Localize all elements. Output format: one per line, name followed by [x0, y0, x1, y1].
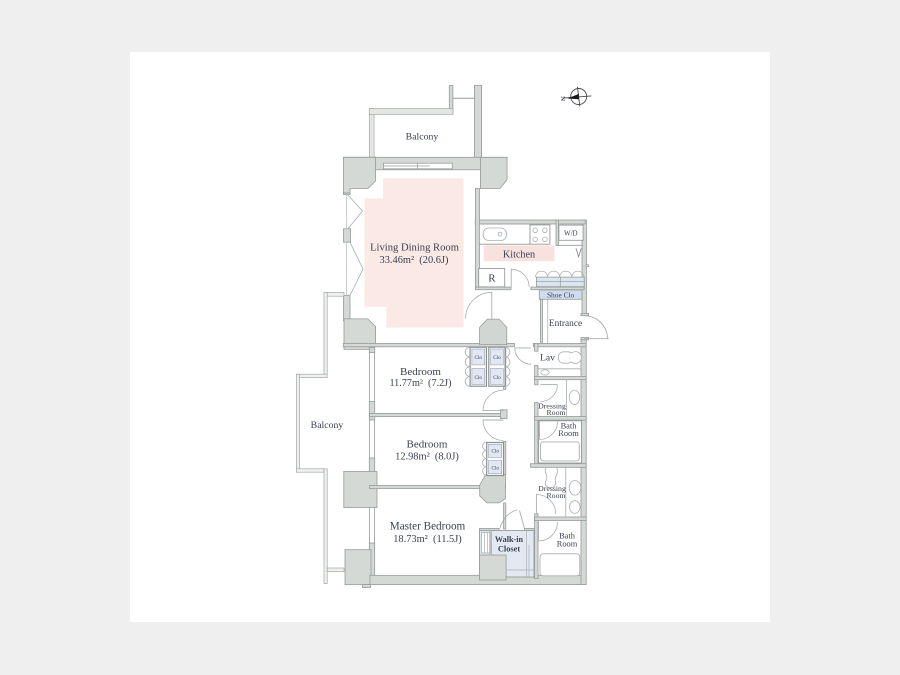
svg-text:N: N — [559, 96, 566, 101]
svg-text:33.46m² (20.6J): 33.46m² (20.6J) — [380, 255, 449, 266]
svg-text:Room: Room — [546, 491, 565, 500]
svg-text:Clo: Clo — [474, 375, 482, 381]
svg-text:Bedroom: Bedroom — [407, 439, 448, 451]
svg-text:Clo: Clo — [493, 375, 501, 381]
svg-text:Clo: Clo — [474, 355, 482, 361]
svg-text:Room: Room — [557, 539, 578, 548]
svg-text:Lav: Lav — [540, 352, 555, 363]
svg-text:Master Bedroom: Master Bedroom — [390, 521, 466, 533]
svg-text:Clo: Clo — [493, 355, 501, 361]
svg-text:Kitchen: Kitchen — [503, 249, 535, 260]
svg-text:Room: Room — [558, 429, 579, 438]
svg-text:12.98m² (8.0J): 12.98m² (8.0J) — [395, 452, 459, 463]
svg-text:W/D: W/D — [564, 229, 578, 237]
svg-text:R: R — [488, 273, 496, 285]
svg-text:Clo: Clo — [491, 465, 499, 471]
svg-text:11.77m² (7.2J): 11.77m² (7.2J) — [389, 378, 451, 389]
svg-text:Bedroom: Bedroom — [400, 366, 441, 378]
svg-text:Closet: Closet — [498, 544, 521, 553]
svg-text:Balcony: Balcony — [311, 420, 344, 431]
svg-text:Balcony: Balcony — [406, 132, 439, 143]
svg-text:Living Dining Room: Living Dining Room — [370, 243, 460, 254]
svg-text:Walk-in: Walk-in — [495, 535, 524, 544]
svg-text:Clo: Clo — [491, 449, 499, 455]
svg-text:Room: Room — [546, 408, 565, 417]
svg-text:Shoe Clo: Shoe Clo — [547, 291, 575, 300]
svg-text:18.73m² (11.5J): 18.73m² (11.5J) — [393, 534, 462, 545]
svg-text:Entrance: Entrance — [549, 319, 582, 329]
